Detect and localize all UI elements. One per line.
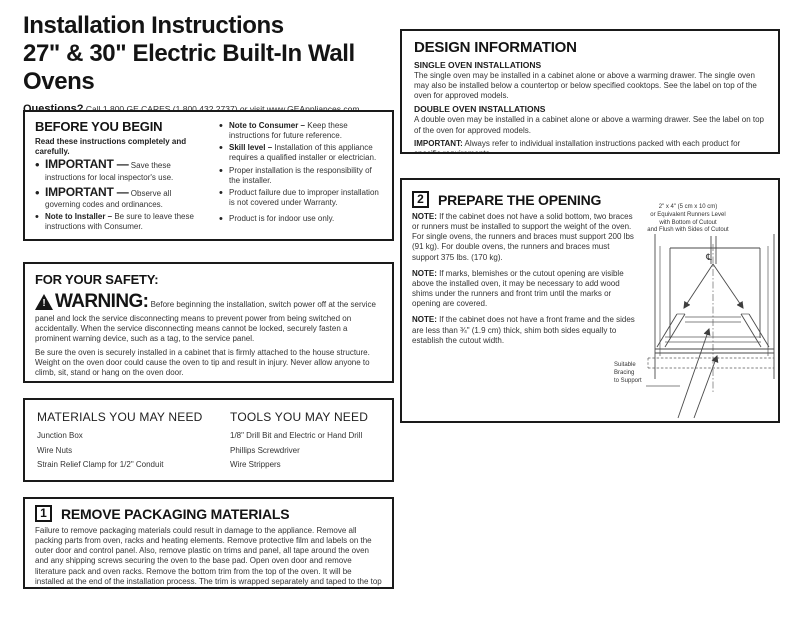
list-item: Note to Consumer – Keep these instructio… (219, 121, 383, 141)
runner-size-label-line: 2" x 4" (5 cm x 10 cm) (600, 204, 776, 212)
material-item: Strain Relief Clamp for 1/2" Conduit (37, 460, 230, 469)
list-item: IMPORTANT — Observe all governing codes … (35, 185, 207, 210)
safety-paragraph-2: Be sure the oven is securely installed i… (35, 348, 382, 378)
warning-paragraph: WARNING: Before beginning the installati… (35, 290, 382, 345)
installation-instructions-page: { "page": { "title_line1": "Installation… (0, 0, 802, 620)
note-lead: NOTE: (412, 212, 437, 221)
design-important-paragraph: IMPORTANT: Always refer to individual in… (414, 139, 766, 154)
design-important-text: Always refer to individual installation … (414, 139, 740, 154)
step1-heading-row: 1 REMOVE PACKAGING MATERIALS (35, 505, 382, 522)
safety-box: FOR YOUR SAFETY: WARNING: Before beginni… (23, 262, 394, 383)
runner-size-label-line: or Equivalent Runners Level (600, 212, 776, 220)
bracing-label: Suitable Bracing to Support (614, 362, 654, 385)
step1-remove-packaging-box: 1 REMOVE PACKAGING MATERIALS Failure to … (23, 497, 394, 589)
cabinet-sides (655, 234, 774, 379)
list-item: IMPORTANT — Save these instructions for … (35, 157, 207, 182)
bullet-lead: Note to Consumer – (229, 121, 305, 130)
tool-item: 1/8" Drill Bit and Electric or Hand Dril… (230, 431, 380, 440)
note-lead: NOTE: (412, 315, 437, 324)
bullet-lead: IMPORTANT — (45, 157, 129, 171)
runner-size-label-line: with Bottom of Cutout (600, 220, 776, 228)
design-important-lead: IMPORTANT: (414, 139, 463, 148)
runner-size-label-line: and Flush with Sides of Cutout (600, 227, 776, 235)
step2-heading: PREPARE THE OPENING (438, 192, 601, 208)
bracing-label-line: Suitable (614, 362, 654, 370)
runners (657, 314, 769, 347)
before-you-begin-intro: Read these instructions completely and c… (35, 137, 207, 157)
single-oven-text: The single oven may be installed in a ca… (414, 71, 766, 101)
bracing-pointer-arrows (646, 329, 717, 418)
bullet-lead: IMPORTANT — (45, 185, 129, 199)
page-title-line1: Installation Instructions (23, 12, 401, 40)
note-text: If marks, blemishes or the cutout openin… (412, 269, 624, 308)
step1-heading: REMOVE PACKAGING MATERIALS (61, 506, 289, 522)
list-item: Product failure due to improper installa… (219, 188, 383, 208)
bracing-area (648, 349, 774, 368)
design-information-box: DESIGN INFORMATION SINGLE OVEN INSTALLAT… (400, 29, 780, 154)
design-information-heading: DESIGN INFORMATION (414, 39, 766, 56)
tools-heading: TOOLS YOU MAY NEED (230, 410, 380, 424)
step1-body: Failure to remove packaging materials co… (35, 526, 382, 589)
step2-prepare-opening-box: 2 PREPARE THE OPENING NOTE: If the cabin… (400, 178, 780, 423)
safety-paragraph-3: Make sure the wall coverings, counters a… (35, 381, 382, 383)
step1-number-badge: 1 (35, 505, 52, 522)
bracing-label-line: to Support (614, 378, 654, 386)
tool-item: Wire Strippers (230, 460, 380, 469)
single-oven-subheading: SINGLE OVEN INSTALLATIONS (414, 60, 766, 70)
attention-installer-paragraph: ATTENTION INSTALLER: All electric wall o… (35, 237, 383, 241)
tools-column: TOOLS YOU MAY NEED 1/8" Drill Bit and El… (230, 410, 380, 475)
step2-number-badge: 2 (412, 191, 429, 208)
bullet-lead: Note to Installer – (45, 212, 112, 221)
list-item: Skill level – Installation of this appli… (219, 143, 383, 163)
list-item: Product is for indoor use only. (219, 214, 383, 224)
cutout-diagram: ℄ (600, 196, 776, 420)
before-you-begin-box: BEFORE YOU BEGIN Read these instructions… (23, 110, 394, 241)
runner-size-label: 2" x 4" (5 cm x 10 cm) or Equivalent Run… (600, 204, 776, 235)
list-item: Note to Installer – Be sure to leave the… (35, 212, 207, 232)
materials-heading: MATERIALS YOU MAY NEED (37, 410, 230, 424)
warning-triangle-icon (35, 294, 53, 310)
material-item: Wire Nuts (37, 446, 230, 455)
double-oven-text: A double oven may be installed in a cabi… (414, 115, 766, 135)
note-lead: NOTE: (412, 269, 437, 278)
before-you-begin-heading: BEFORE YOU BEGIN (35, 119, 207, 134)
bracing-label-line: Bracing (614, 370, 654, 378)
page-title-line2: 27" & 30" Electric Built-In Wall Ovens (23, 40, 401, 96)
runner-pointer-arrows (684, 236, 743, 308)
warning-word: WARNING: (55, 291, 148, 312)
double-oven-subheading: DOUBLE OVEN INSTALLATIONS (414, 104, 766, 114)
attention-installer-lead: ATTENTION INSTALLER: (35, 237, 178, 241)
material-item: Junction Box (37, 431, 230, 440)
safety-heading: FOR YOUR SAFETY: (35, 272, 382, 287)
materials-column: MATERIALS YOU MAY NEED Junction Box Wire… (37, 410, 230, 475)
bullet-lead: Skill level – (229, 143, 272, 152)
list-item: Proper installation is the responsibilit… (219, 166, 383, 186)
before-you-begin-left-column: BEFORE YOU BEGIN Read these instructions… (35, 119, 207, 234)
cutout-opening (670, 248, 760, 338)
tool-item: Phillips Screwdriver (230, 446, 380, 455)
materials-tools-box: MATERIALS YOU MAY NEED Junction Box Wire… (23, 398, 394, 482)
before-you-begin-right-column: Note to Consumer – Keep these instructio… (207, 119, 383, 234)
